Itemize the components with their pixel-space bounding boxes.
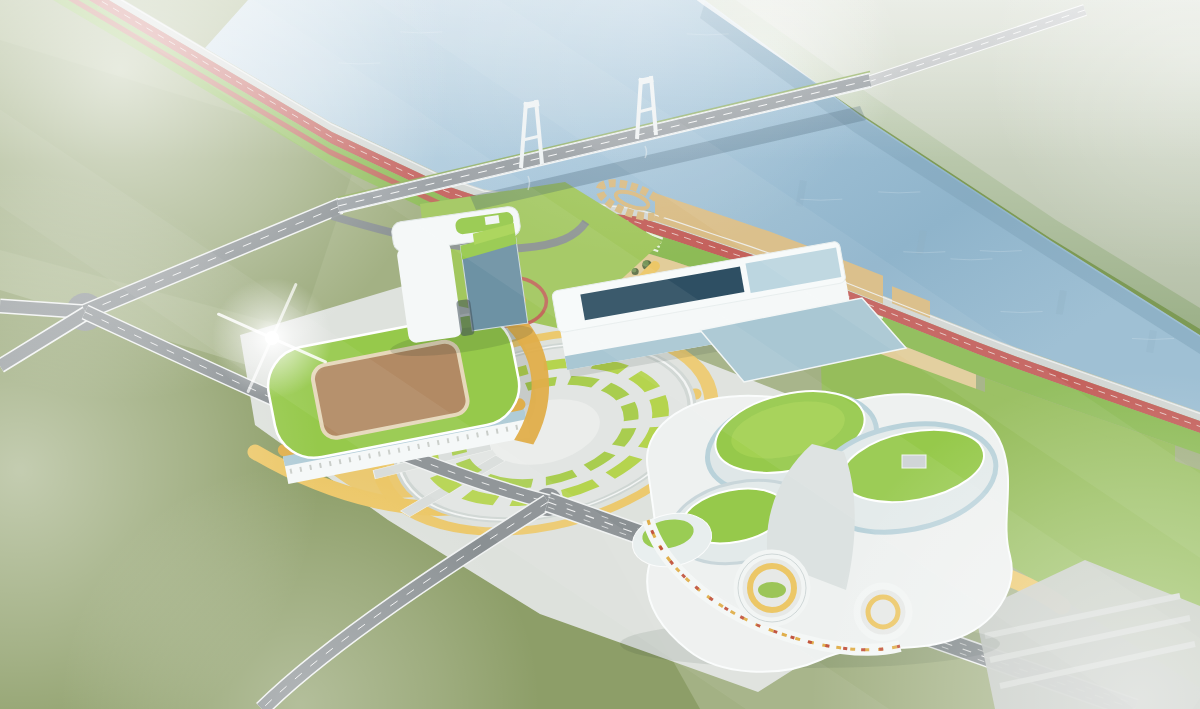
flare-core xyxy=(265,331,279,345)
courtyard-lawn xyxy=(758,582,786,598)
sun-flare xyxy=(212,278,332,398)
scene-canvas xyxy=(0,0,1200,709)
courtyard-1 xyxy=(738,554,806,622)
architectural-rendering xyxy=(0,0,1200,709)
